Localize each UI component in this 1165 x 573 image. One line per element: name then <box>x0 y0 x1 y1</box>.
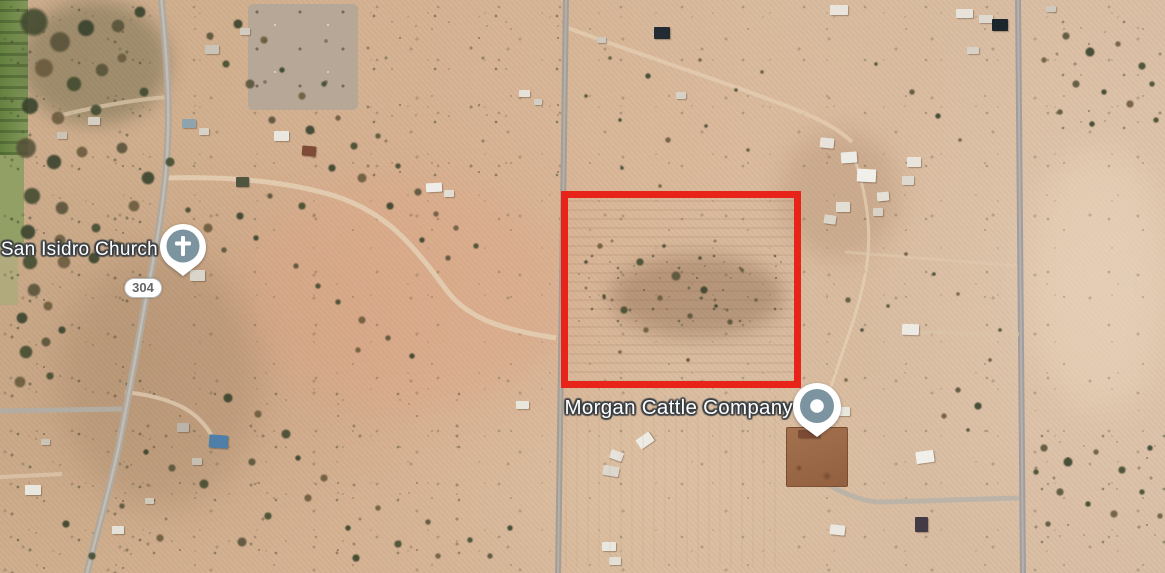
tree <box>19 345 33 359</box>
tree <box>51 111 65 125</box>
tree <box>116 142 128 154</box>
tree <box>385 335 391 341</box>
tree <box>46 154 62 170</box>
tree <box>1033 469 1039 475</box>
tree <box>134 6 146 18</box>
tree <box>90 104 102 116</box>
tree <box>222 60 230 68</box>
paved-road-bottom-left <box>0 409 122 411</box>
tree <box>236 212 244 220</box>
tree <box>958 138 962 142</box>
tree <box>956 292 960 296</box>
building <box>992 19 1008 31</box>
parcel-outline <box>561 191 801 388</box>
tree <box>143 449 149 455</box>
building <box>302 145 317 156</box>
tree <box>119 503 125 509</box>
tree <box>185 207 191 213</box>
tree <box>199 479 209 489</box>
tree <box>46 372 54 380</box>
building <box>836 202 850 212</box>
tree <box>1040 444 1048 452</box>
route-304-number: 304 <box>132 280 154 295</box>
tree <box>43 301 53 311</box>
tree <box>221 247 227 253</box>
tree <box>281 429 291 439</box>
tree <box>435 553 441 559</box>
tree <box>1153 117 1159 123</box>
field-rows <box>565 395 777 567</box>
tree <box>253 235 259 241</box>
tree <box>335 299 341 305</box>
tree <box>55 201 69 215</box>
building <box>841 151 858 163</box>
tree <box>293 263 299 269</box>
dirt-road <box>168 178 556 338</box>
tree <box>932 272 936 276</box>
building <box>979 15 993 23</box>
tree <box>375 505 381 511</box>
building <box>534 99 542 105</box>
tree <box>760 70 764 74</box>
tree <box>248 458 256 466</box>
tree <box>128 200 140 212</box>
building <box>177 423 189 432</box>
building <box>823 214 836 225</box>
tree <box>21 97 39 115</box>
tree <box>20 224 36 240</box>
tree <box>860 328 864 332</box>
building <box>877 191 890 201</box>
tree <box>419 237 425 243</box>
tree <box>335 115 341 121</box>
tree <box>352 554 360 562</box>
tree <box>15 137 37 159</box>
tree <box>1057 109 1063 115</box>
tree <box>267 193 273 199</box>
tree <box>62 520 70 528</box>
tree <box>467 537 473 543</box>
church-pin-icon[interactable] <box>159 223 207 277</box>
tree <box>1157 513 1163 519</box>
tree <box>658 184 662 188</box>
tree <box>746 148 750 152</box>
building <box>907 157 921 167</box>
tree <box>358 316 366 324</box>
tree <box>23 187 41 205</box>
tree <box>395 163 401 169</box>
tree <box>453 225 459 231</box>
tree <box>886 304 890 308</box>
building <box>1046 6 1056 12</box>
tree <box>76 146 88 158</box>
building <box>444 190 454 197</box>
tree <box>844 378 848 382</box>
tree <box>95 63 109 77</box>
tree <box>935 113 941 119</box>
tree <box>298 92 306 100</box>
tree <box>233 19 243 29</box>
tree <box>77 19 95 37</box>
dirt-road <box>58 97 168 116</box>
tree <box>507 525 513 531</box>
tree <box>414 188 422 196</box>
tree <box>425 519 431 525</box>
building <box>676 92 686 99</box>
tree <box>264 512 272 520</box>
tree <box>315 283 321 289</box>
tree <box>645 73 651 79</box>
dirt-road <box>568 28 852 142</box>
tree <box>433 211 439 217</box>
tree <box>1063 457 1073 467</box>
building <box>192 458 202 465</box>
tree <box>375 133 381 139</box>
tree <box>974 402 982 410</box>
building <box>902 176 914 185</box>
tree <box>295 455 301 461</box>
tree <box>304 494 312 502</box>
tree <box>874 62 878 66</box>
tree <box>14 376 26 388</box>
tree <box>156 534 164 542</box>
building <box>519 90 530 97</box>
tree <box>698 58 702 62</box>
building <box>209 434 229 448</box>
church-label[interactable]: San Isidro Church <box>1 239 158 261</box>
tree <box>998 328 1002 332</box>
tree <box>254 410 262 418</box>
tree <box>665 137 671 143</box>
building <box>274 131 289 141</box>
tree <box>608 56 612 60</box>
building <box>902 324 919 336</box>
tree <box>1062 32 1070 40</box>
dirt-road <box>125 392 212 436</box>
tree <box>117 53 127 63</box>
building <box>88 117 100 125</box>
tree <box>904 252 908 256</box>
building <box>830 524 846 536</box>
tree <box>223 393 233 403</box>
tree <box>1085 501 1091 507</box>
tree <box>328 164 336 172</box>
tree <box>955 387 961 393</box>
tree <box>139 87 149 97</box>
tree <box>1089 121 1095 127</box>
tree <box>966 428 970 432</box>
tree <box>206 32 214 40</box>
building <box>426 183 442 193</box>
tree <box>1045 521 1051 527</box>
tree <box>1110 510 1118 518</box>
tree <box>1138 62 1146 70</box>
tree <box>320 474 328 482</box>
building <box>57 132 67 139</box>
tree <box>268 116 276 124</box>
tree <box>845 297 851 303</box>
tree <box>357 173 367 183</box>
tree <box>618 118 622 122</box>
tree <box>34 58 54 78</box>
tree <box>1101 89 1107 95</box>
tree <box>19 7 49 37</box>
building <box>199 128 209 135</box>
tree <box>88 552 96 560</box>
tree <box>409 353 415 359</box>
dirt-road <box>0 474 62 477</box>
tree <box>260 36 268 44</box>
dirt-road <box>905 332 1019 334</box>
tree <box>111 19 125 33</box>
tree <box>386 202 394 210</box>
building <box>654 27 670 39</box>
tree <box>305 125 315 135</box>
building <box>240 28 250 35</box>
morgan-label[interactable]: Morgan Cattle Company <box>565 396 794 420</box>
tree <box>321 81 327 87</box>
building <box>857 169 877 183</box>
dirt-road <box>845 252 1019 266</box>
building <box>145 498 154 504</box>
building <box>182 119 196 128</box>
tree <box>1126 100 1134 108</box>
tree <box>355 347 361 353</box>
tree <box>41 337 51 347</box>
tree <box>909 89 915 95</box>
building <box>915 517 928 532</box>
tree <box>298 202 306 210</box>
tree <box>345 525 351 531</box>
tree <box>394 540 402 548</box>
tree <box>58 326 66 334</box>
tree <box>988 358 992 362</box>
building <box>820 137 835 148</box>
building <box>236 177 249 187</box>
tree <box>16 312 28 324</box>
tree <box>141 171 155 185</box>
building <box>597 37 606 43</box>
tree <box>584 94 588 98</box>
tree <box>168 464 176 472</box>
building <box>873 208 883 216</box>
tree <box>941 413 947 419</box>
building <box>205 45 219 54</box>
tree <box>1147 445 1153 451</box>
tree <box>1056 488 1064 496</box>
tree <box>165 157 175 167</box>
tree <box>1149 81 1155 87</box>
tree <box>1093 449 1099 455</box>
building <box>112 526 124 534</box>
morgan-pin-icon[interactable] <box>792 382 842 438</box>
tree <box>1072 80 1080 88</box>
tree <box>734 88 738 92</box>
tree <box>91 223 101 233</box>
tree <box>1115 41 1121 47</box>
building <box>516 401 529 409</box>
satellite-map[interactable]: San Isidro Church Morgan Cattle Company … <box>0 0 1165 573</box>
tree <box>1085 47 1095 57</box>
building <box>830 5 848 15</box>
tree <box>1041 57 1047 63</box>
tree <box>237 537 247 547</box>
tree <box>27 283 41 297</box>
tree <box>66 76 82 92</box>
tree <box>350 142 358 150</box>
tree <box>473 243 479 249</box>
building <box>956 9 973 18</box>
building <box>41 439 50 445</box>
tree <box>279 67 285 73</box>
building <box>25 485 41 495</box>
tree <box>445 255 451 261</box>
building <box>967 47 979 54</box>
tree <box>487 553 493 559</box>
tree <box>1139 489 1145 495</box>
route-304-shield[interactable]: 304 <box>124 278 162 298</box>
tree <box>704 124 708 128</box>
tree <box>620 166 624 170</box>
tree <box>49 31 71 53</box>
tree <box>245 79 255 89</box>
tree <box>1118 466 1126 474</box>
building <box>915 450 934 464</box>
